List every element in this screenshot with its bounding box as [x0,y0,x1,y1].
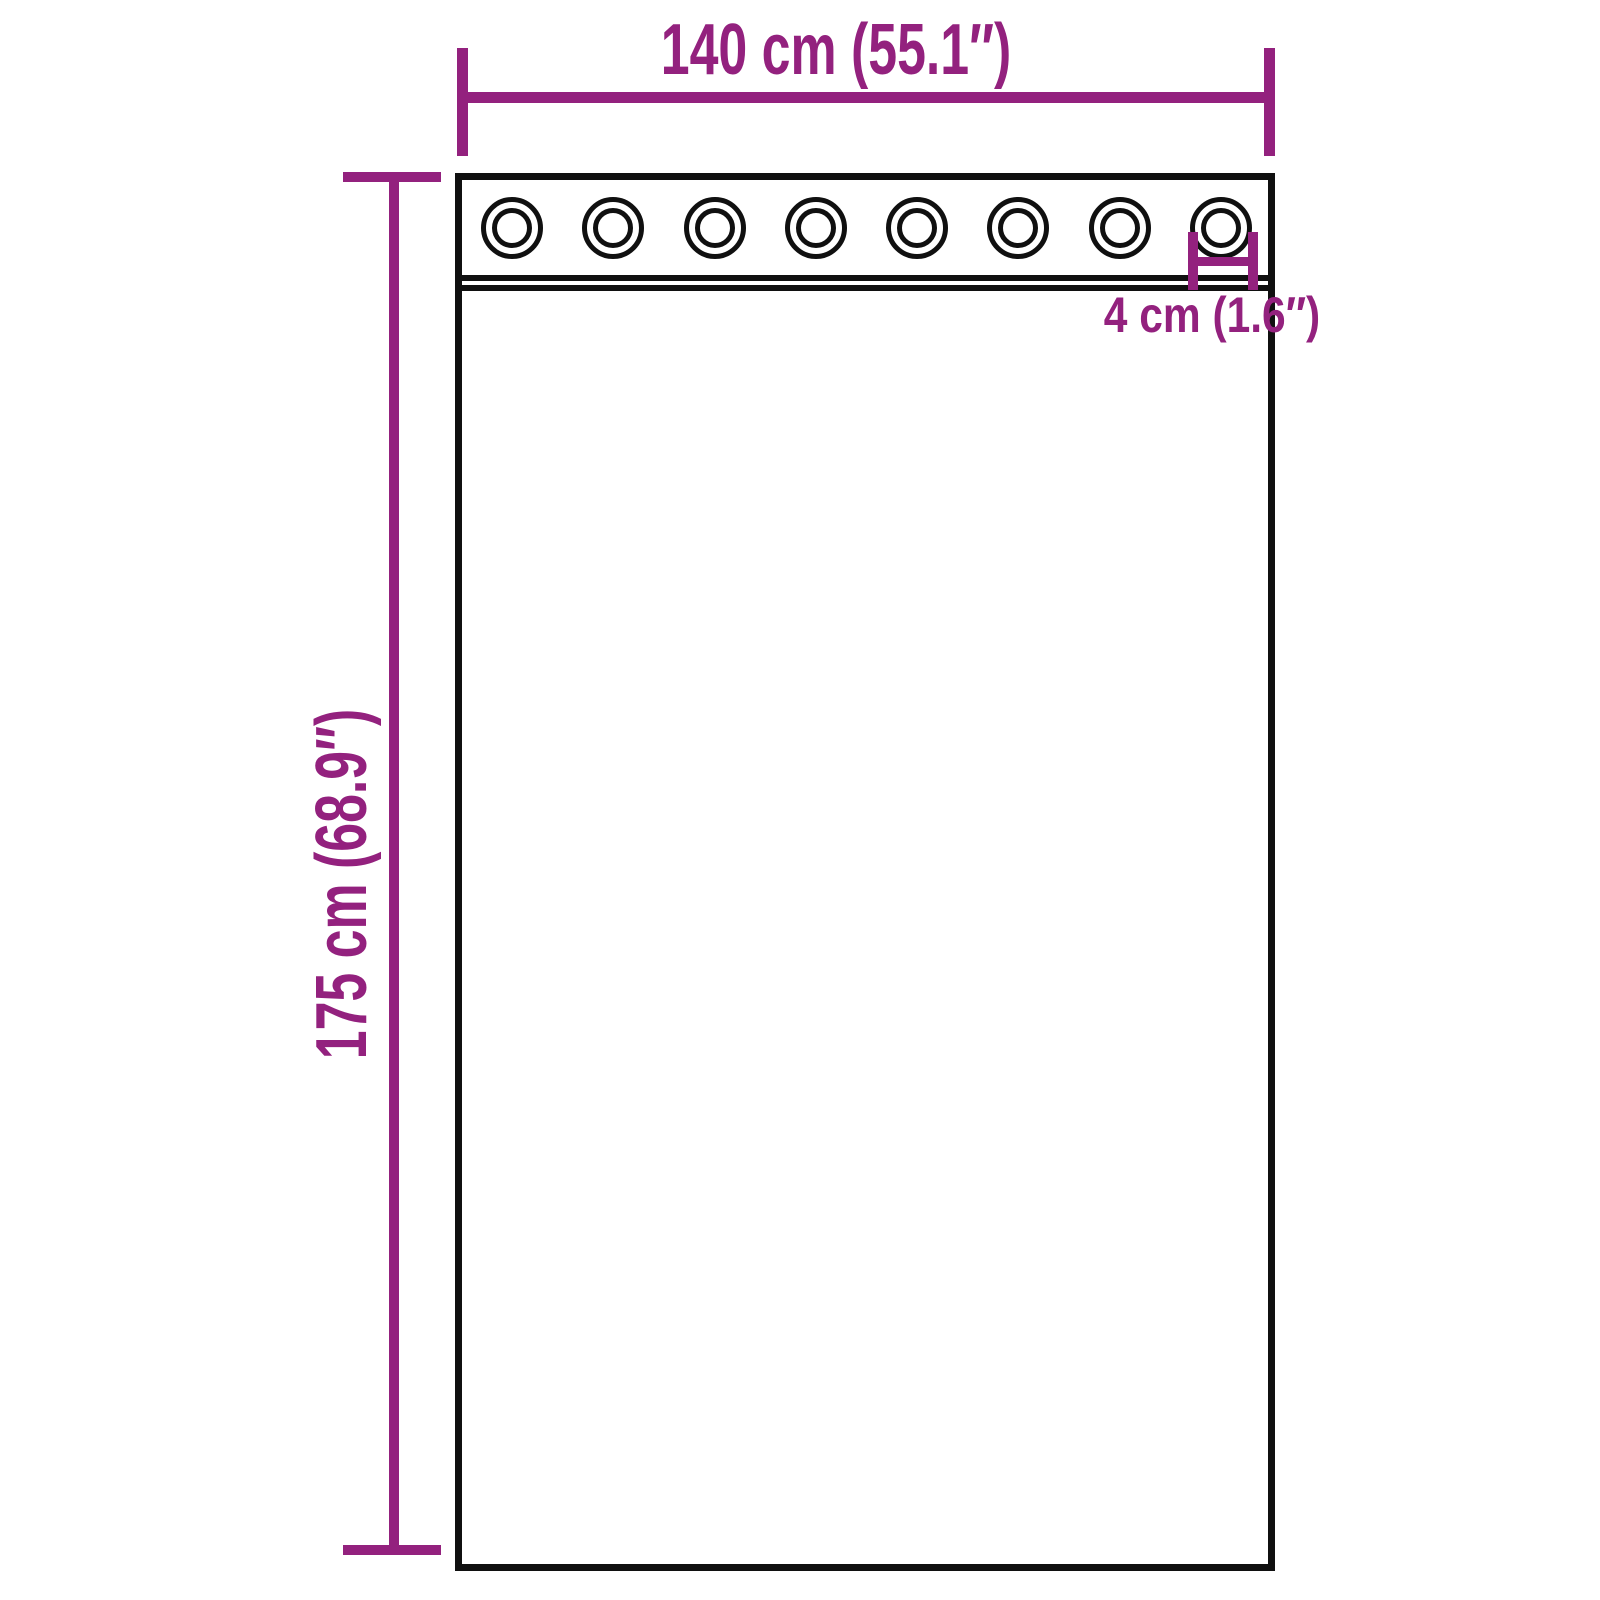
grommet-hole-icon [998,208,1038,248]
grommet-hole-icon [492,208,532,248]
grommet-dimension-line [1190,257,1256,266]
width-dimension-line [458,92,1275,103]
grommet-row [481,197,1252,259]
curtain-panel [455,173,1275,1571]
grommet-hole-icon [695,208,735,248]
grommet-hole-icon [1201,208,1241,248]
grommet-icon [987,197,1049,259]
grommet-icon [582,197,644,259]
grommet-icon [886,197,948,259]
dimension-diagram: 140 cm (55.1″) 175 cm (68.9″) 4 cm (1.6″… [0,0,1600,1600]
height-dimension-tick-bottom [343,1545,441,1555]
grommet-hole-icon [593,208,633,248]
width-dimension-tick-right [1264,48,1275,156]
grommet-icon [1089,197,1151,259]
grommet-icon [785,197,847,259]
grommet-icon [684,197,746,259]
height-dimension-tick-top [343,172,441,182]
header-band-line-upper [462,275,1268,281]
grommet-hole-icon [796,208,836,248]
height-dimension-line [389,175,399,1553]
width-dimension-label: 140 cm (55.1″) [661,14,1011,86]
grommet-dimension-label: 4 cm (1.6″) [1104,290,1320,340]
grommet-icon [481,197,543,259]
grommet-hole-icon [1100,208,1140,248]
grommet-icon [1190,197,1252,259]
width-dimension-tick-left [457,48,468,156]
height-dimension-label: 175 cm (68.9″) [306,709,378,1059]
grommet-hole-icon [897,208,937,248]
